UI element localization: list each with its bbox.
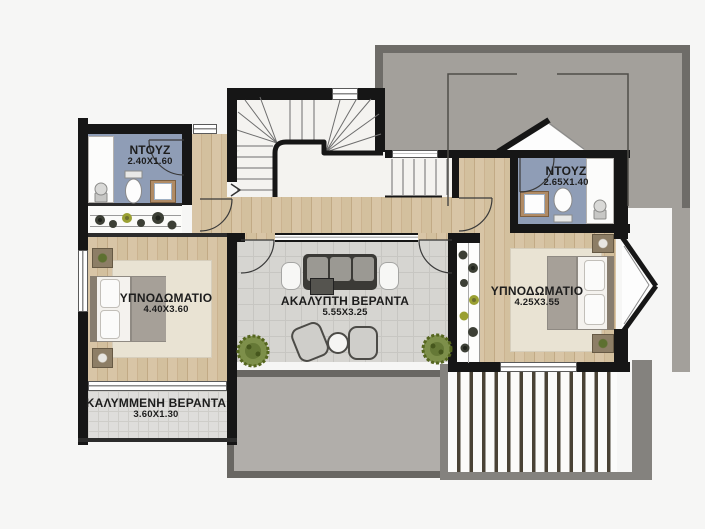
- nightstand: [592, 234, 614, 253]
- sink-basin: [154, 183, 172, 200]
- planter-strip: [457, 243, 480, 363]
- window-wardrobe-top: [193, 124, 217, 134]
- nightstand: [592, 334, 614, 353]
- wall-plantshelf-bottom: [88, 233, 237, 237]
- window-bedroom-right-bottom: [500, 362, 577, 372]
- nightstand: [92, 248, 113, 268]
- floor-plan: ΝΤΟΥΖ 2.40X1.60 ΝΤΟΥΖ 2.65X1.40 ΥΠΝΟΔΩΜΑ…: [0, 0, 705, 529]
- window-bedroom-left-bottom: [88, 381, 227, 391]
- lower-terrace: [227, 370, 447, 478]
- wall-shower-right-top: [510, 150, 630, 158]
- window-bedroom-left-wall: [78, 250, 88, 312]
- room-label-bedroom-left: ΥΠΝΟΔΩΜΑΤΙΟ 4.40X3.60: [120, 292, 212, 316]
- wall-covered-veranda-bottom: [78, 438, 237, 442]
- wall-shower-left-bottom: [88, 203, 182, 206]
- wall-shower-left-top: [78, 124, 192, 134]
- bed-headboard: [607, 256, 614, 330]
- window-mid-band: [392, 150, 438, 158]
- room-name: ΥΠΝΟΔΩΜΑΤΙΟ: [120, 292, 212, 305]
- room-name: ΝΤΟΥΖ: [543, 165, 588, 178]
- hall-corridor-floor: [192, 197, 455, 233]
- room-label-shower-right: ΝΤΟΥΖ 2.65X1.40: [543, 165, 588, 189]
- side-table: [281, 262, 301, 290]
- wall-hall-right: [452, 158, 459, 198]
- coffee-table-icon: [310, 278, 334, 295]
- plant-shelf-left: [88, 206, 182, 233]
- room-dims: 3.60X1.30: [86, 410, 227, 421]
- room-label-veranda-open: ΑΚΑΛΥΠΤΗ ΒΕΡΑΝΤΑ 5.55X3.25: [281, 295, 409, 319]
- sofa-cushion: [353, 257, 374, 281]
- room-dims: 4.40X3.60: [120, 305, 212, 316]
- armchair-icon: [348, 326, 378, 360]
- room-name: ΚΑΛΥΜΜΕΝΗ ΒΕΡΑΝΤΑ: [86, 397, 227, 410]
- wall-veranda-right: [448, 238, 457, 368]
- room-dims: 5.55X3.25: [281, 308, 409, 319]
- wall-planter-top: [448, 233, 480, 243]
- pillow: [100, 310, 120, 339]
- wall-shower-right-bottom: [510, 224, 630, 233]
- shower-tray: [586, 158, 614, 224]
- room-name: ΑΚΑΛΥΠΤΗ ΒΕΡΑΝΤΑ: [281, 295, 409, 308]
- wall-stair-right: [375, 88, 385, 152]
- room-dims: 2.40X1.60: [127, 157, 172, 168]
- wall-veranda-left: [227, 233, 237, 445]
- room-dims: 4.25X3.55: [491, 298, 583, 309]
- room-label-bedroom-right: ΥΠΝΟΔΩΜΑΤΙΟ 4.25X3.55: [491, 285, 583, 309]
- wall-stair-left: [227, 88, 237, 182]
- round-table-icon: [327, 332, 349, 354]
- wall-shower-right-left: [510, 150, 518, 233]
- pillow: [584, 294, 605, 325]
- window-stair-top: [332, 88, 358, 100]
- nightstand: [92, 348, 113, 368]
- pergola-frame-left: [440, 364, 448, 480]
- stair-hall-floor-upper: [237, 96, 377, 154]
- right-connector-floor: [455, 158, 517, 233]
- pergola-frame-bottom: [440, 472, 652, 480]
- bay-window-icon: [622, 237, 656, 333]
- wall-right-upper: [614, 150, 628, 239]
- pergola-frame-right: [632, 360, 652, 480]
- pergola-slats: [448, 372, 617, 472]
- room-label-shower-left: ΝΤΟΥΖ 2.40X1.60: [127, 144, 172, 168]
- pillow: [100, 279, 120, 308]
- room-dims: 2.65X1.40: [543, 178, 588, 189]
- wall-stair-top: [227, 88, 385, 100]
- shower-tray: [88, 136, 114, 203]
- bed-headboard: [90, 276, 97, 342]
- room-name: ΥΠΝΟΔΩΜΑΤΙΟ: [491, 285, 583, 298]
- side-table: [379, 262, 399, 290]
- roof-side-strip: [672, 208, 690, 372]
- room-label-veranda-covered: ΚΑΛΥΜΜΕΝΗ ΒΕΡΑΝΤΑ 3.60X1.30: [86, 397, 227, 421]
- pillow: [584, 260, 605, 291]
- wall-veranda-top-stub-left: [237, 233, 245, 242]
- room-name: ΝΤΟΥΖ: [127, 144, 172, 157]
- wall-shower-left-right: [182, 134, 192, 205]
- window-veranda-glazing: [275, 233, 418, 242]
- sink-basin: [524, 194, 545, 214]
